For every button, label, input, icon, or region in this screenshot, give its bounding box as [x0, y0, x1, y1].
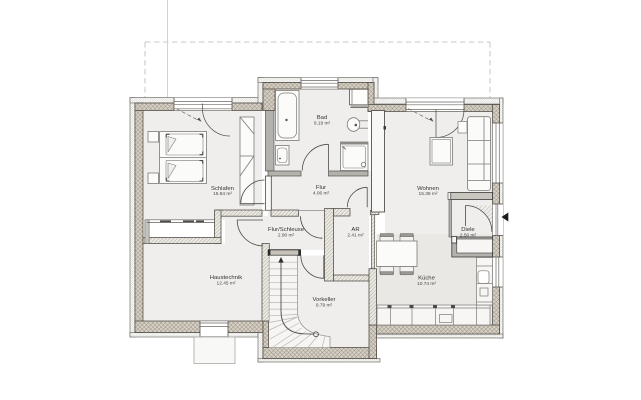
- svg-text:15.84 m²: 15.84 m²: [213, 191, 232, 197]
- svg-text:2.41 m²: 2.41 m²: [347, 232, 364, 238]
- svg-text:Diele: Diele: [461, 227, 475, 233]
- svg-text:Haustechnik: Haustechnik: [210, 275, 242, 281]
- svg-text:Küche: Küche: [418, 275, 435, 281]
- svg-text:Wohnen: Wohnen: [417, 186, 439, 192]
- svg-text:Bad: Bad: [317, 115, 327, 121]
- svg-text:9.79 m²: 9.79 m²: [316, 303, 333, 309]
- svg-text:2.90 m²: 2.90 m²: [278, 232, 295, 238]
- svg-text:10.74 m²: 10.74 m²: [417, 281, 436, 287]
- svg-text:4.06 m²: 4.06 m²: [313, 191, 330, 197]
- svg-text:Flur: Flur: [316, 185, 326, 191]
- svg-text:Flur/Schleuse: Flur/Schleuse: [268, 227, 305, 233]
- svg-text:2.50 m²: 2.50 m²: [460, 232, 477, 238]
- svg-text:AR: AR: [351, 227, 359, 233]
- svg-text:15.39 m²: 15.39 m²: [419, 191, 438, 197]
- svg-text:9.19 m²: 9.19 m²: [314, 121, 331, 127]
- svg-text:12.45 m²: 12.45 m²: [217, 280, 236, 286]
- svg-text:Vorkeller: Vorkeller: [313, 297, 336, 303]
- svg-text:Schlafen: Schlafen: [211, 186, 234, 192]
